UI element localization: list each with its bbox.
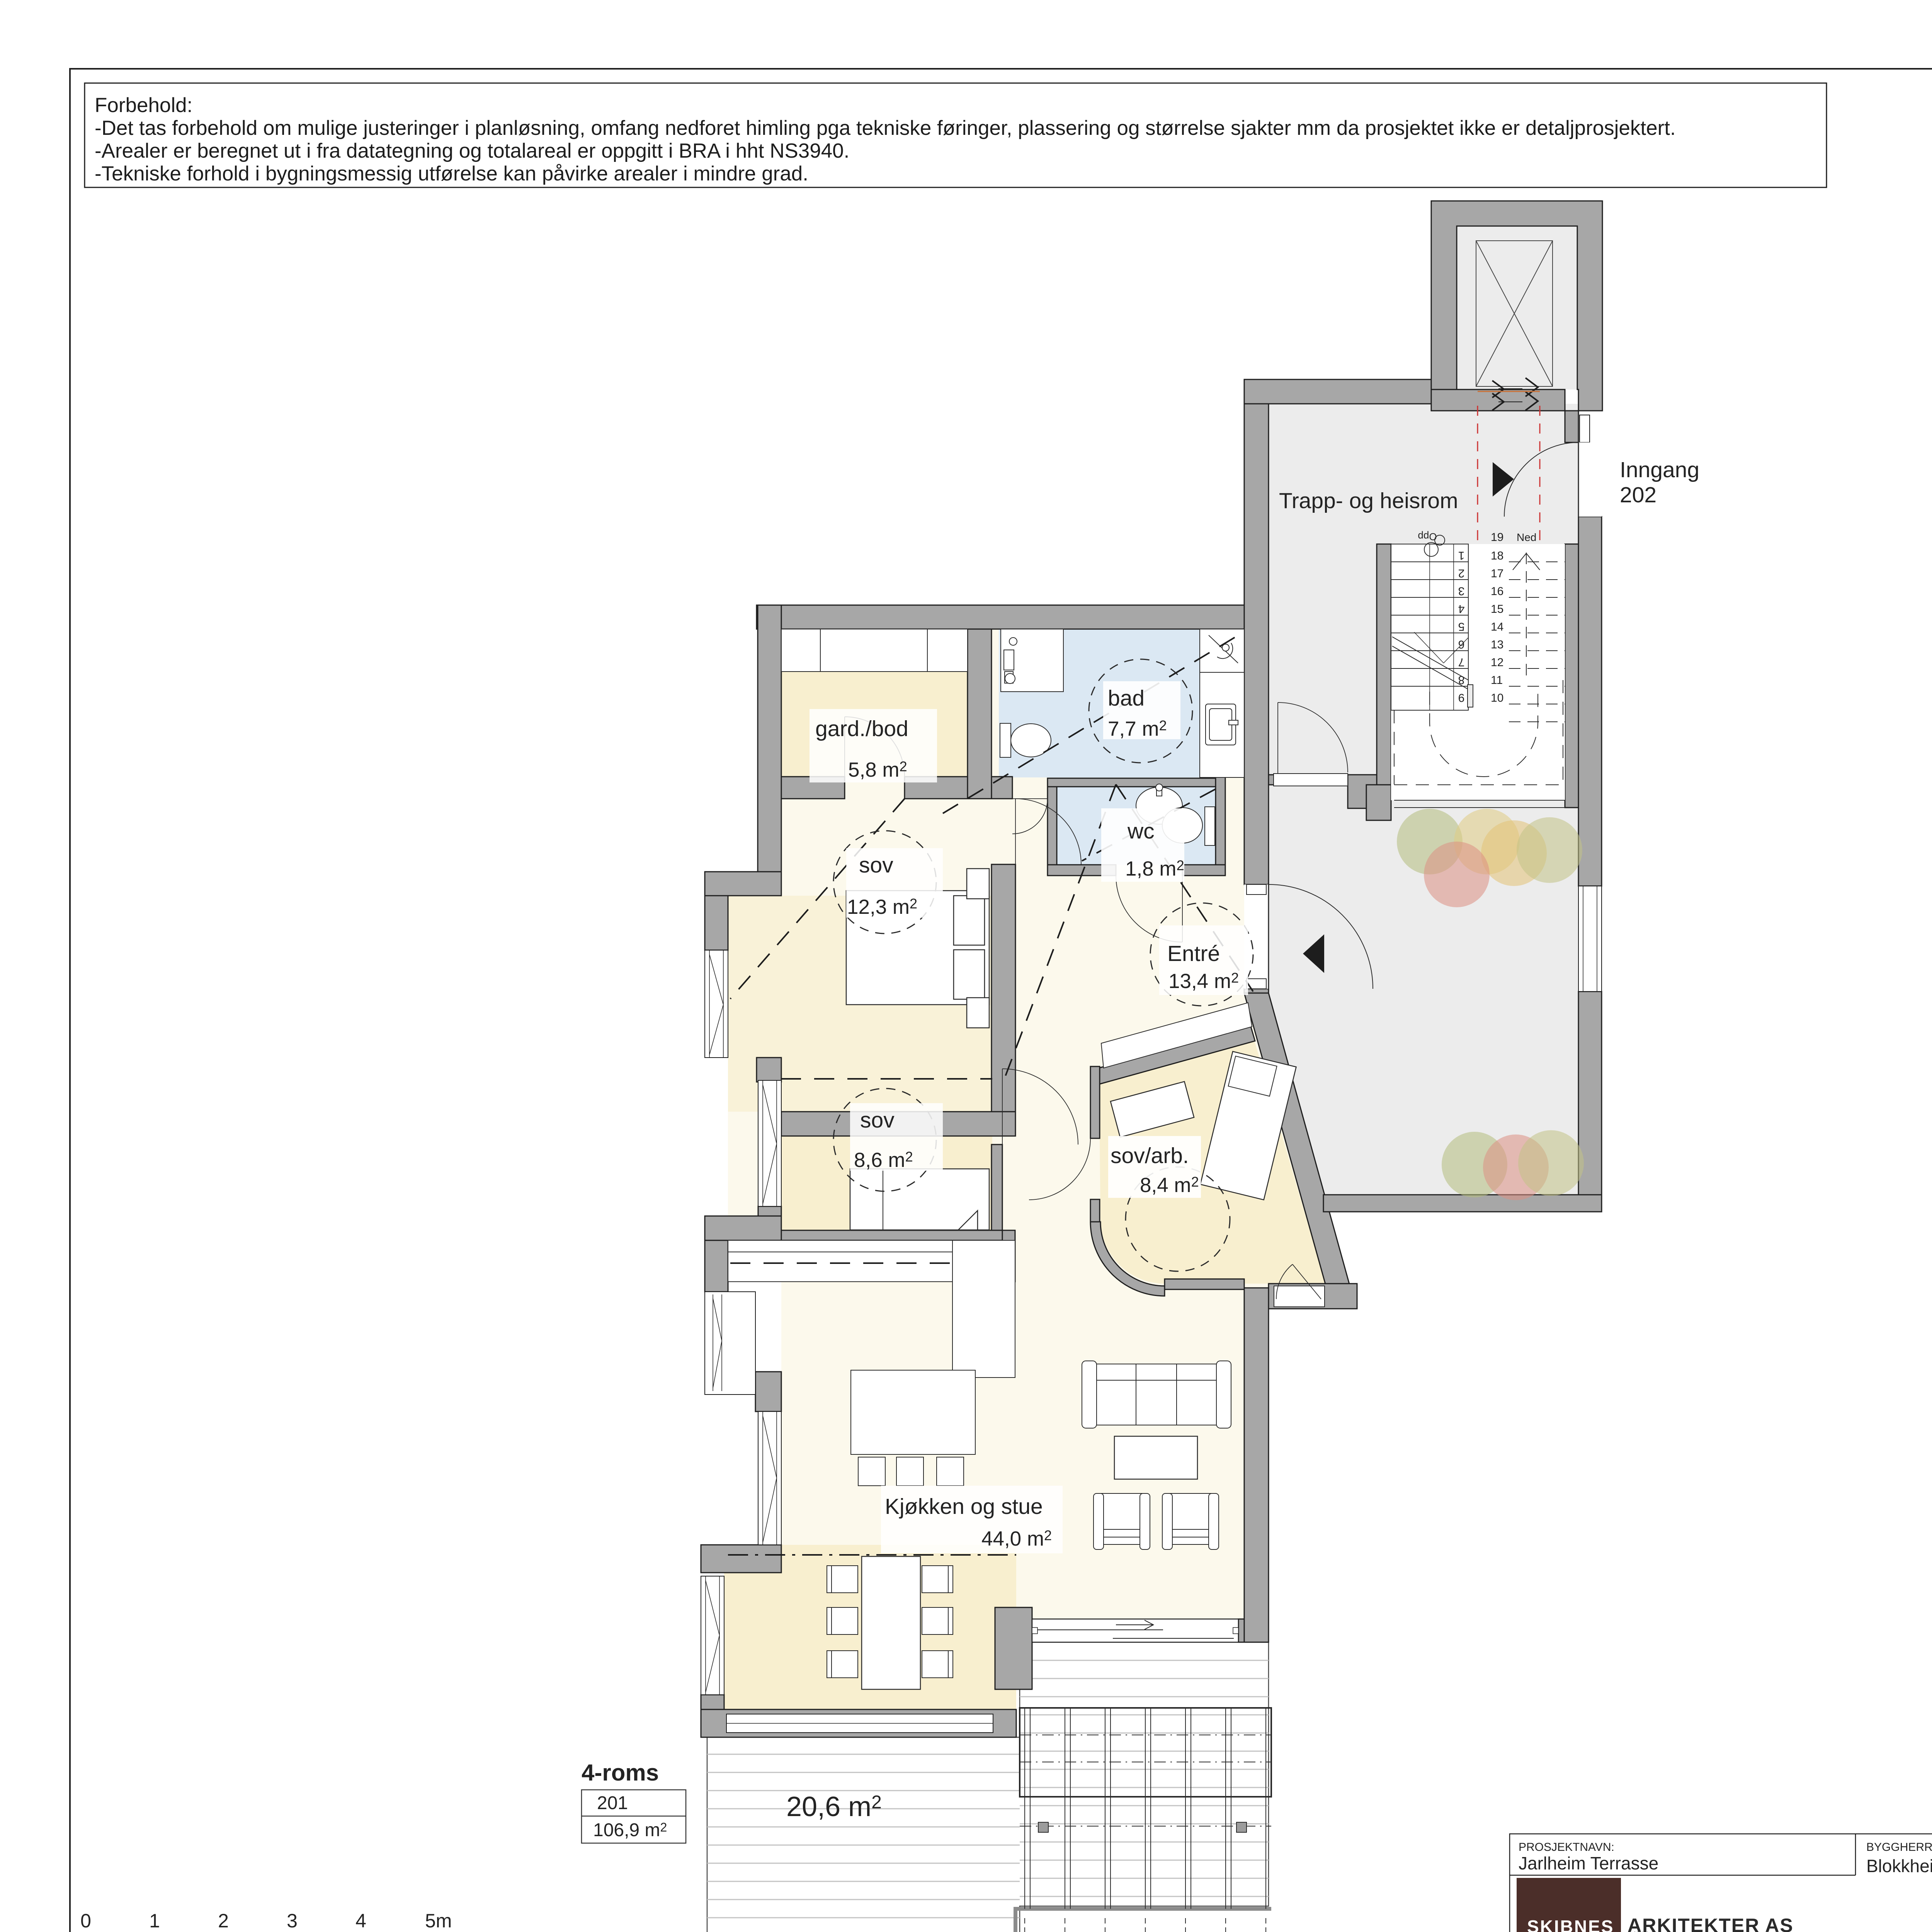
svg-text:19: 19 (1491, 531, 1503, 544)
svg-text:8,4 m2: 8,4 m2 (1140, 1174, 1199, 1197)
svg-text:9: 9 (1458, 691, 1465, 704)
svg-text:5: 5 (1458, 620, 1465, 633)
svg-text:-Tekniske forhold i bygningsme: -Tekniske forhold i bygningsmessig utfør… (95, 162, 808, 185)
svg-text:18: 18 (1491, 549, 1503, 562)
svg-text:8,6 m2: 8,6 m2 (854, 1149, 913, 1172)
svg-text:5m: 5m (425, 1910, 452, 1932)
svg-text:2: 2 (1458, 567, 1465, 580)
svg-text:7,7 m2: 7,7 m2 (1108, 718, 1167, 740)
svg-text:BYGGHERRE:: BYGGHERRE: (1866, 1841, 1932, 1854)
svg-text:Kjøkken og stue: Kjøkken og stue (885, 1494, 1043, 1519)
svg-text:202: 202 (1620, 483, 1656, 507)
svg-text:16: 16 (1491, 585, 1503, 598)
svg-text:MNAL: MNAL (1628, 1930, 1656, 1932)
svg-text:Ned: Ned (1517, 531, 1536, 543)
svg-text:12: 12 (1491, 656, 1503, 669)
svg-text:13: 13 (1491, 638, 1503, 651)
svg-text:Opp: Opp (1418, 531, 1437, 543)
svg-text:4: 4 (355, 1910, 366, 1932)
svg-text:sov/arb.: sov/arb. (1111, 1143, 1189, 1168)
svg-text:1: 1 (1458, 549, 1465, 562)
svg-text:Jarlheim Terrasse: Jarlheim Terrasse (1519, 1853, 1658, 1873)
svg-text:11: 11 (1491, 674, 1503, 687)
svg-text:6: 6 (1458, 638, 1465, 651)
svg-text:44,0 m2: 44,0 m2 (981, 1527, 1052, 1550)
svg-text:sov: sov (859, 853, 893, 878)
svg-text:bad: bad (1108, 686, 1145, 711)
svg-text:17: 17 (1491, 567, 1503, 580)
svg-text:20,6 m2: 20,6 m2 (786, 1791, 882, 1822)
svg-text:Trapp- og heisrom: Trapp- og heisrom (1279, 488, 1458, 513)
svg-text:PROSJEKTNAVN:: PROSJEKTNAVN: (1519, 1841, 1614, 1854)
svg-text:4: 4 (1458, 602, 1465, 615)
svg-text:sov: sov (860, 1108, 895, 1133)
svg-text:14: 14 (1491, 621, 1503, 633)
svg-text:2: 2 (218, 1910, 229, 1932)
svg-text:wc: wc (1127, 819, 1155, 844)
svg-text:Forbehold:: Forbehold: (95, 94, 192, 117)
svg-text:12,3 m2: 12,3 m2 (847, 896, 917, 918)
svg-text:SKIBNES: SKIBNES (1527, 1917, 1614, 1932)
svg-text:1: 1 (149, 1910, 160, 1932)
svg-text:3: 3 (1458, 585, 1465, 597)
svg-text:0: 0 (80, 1910, 91, 1932)
svg-text:gard./bod: gard./bod (815, 716, 908, 741)
svg-text:Blokkheim AS: Blokkheim AS (1866, 1856, 1932, 1876)
svg-text:Entré: Entré (1167, 941, 1220, 966)
svg-text:3: 3 (287, 1910, 298, 1932)
svg-text:8: 8 (1458, 673, 1465, 686)
svg-text:201: 201 (597, 1793, 628, 1813)
svg-text:Inngang: Inngang (1620, 457, 1699, 482)
svg-text:4-roms: 4-roms (582, 1760, 659, 1786)
svg-text:13,4 m2: 13,4 m2 (1168, 970, 1239, 993)
svg-text:7: 7 (1458, 656, 1465, 668)
svg-text:1,8 m2: 1,8 m2 (1125, 857, 1184, 880)
svg-text:5,8 m2: 5,8 m2 (848, 759, 907, 781)
svg-text:10: 10 (1491, 692, 1503, 704)
svg-text:-Det tas forbehold om mulige j: -Det tas forbehold om mulige justeringer… (95, 117, 1676, 139)
svg-text:-Arealer er beregnet ut i fra: -Arealer er beregnet ut i fra datategnin… (95, 139, 849, 162)
svg-text:106,9 m2: 106,9 m2 (593, 1820, 667, 1840)
svg-text:15: 15 (1491, 603, 1503, 616)
